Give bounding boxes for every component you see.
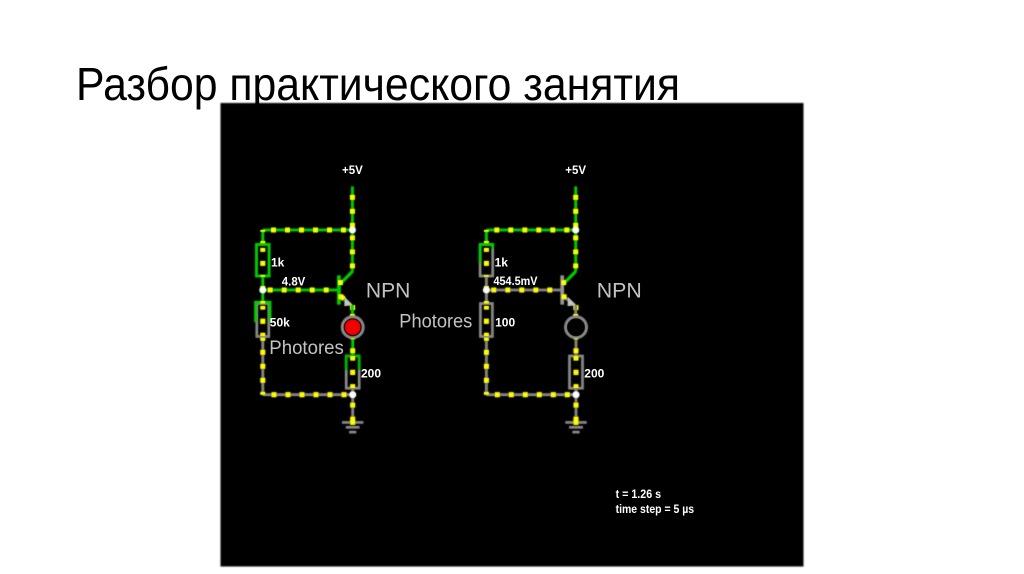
svg-text:1k: 1k [495, 256, 509, 270]
svg-text:454.5mV: 454.5mV [494, 274, 538, 288]
svg-text:100: 100 [495, 316, 515, 330]
svg-text:1k: 1k [271, 256, 285, 270]
svg-text:50k: 50k [270, 316, 290, 330]
svg-text:+5V: +5V [565, 165, 586, 177]
svg-text:NPN: NPN [366, 280, 411, 303]
svg-text:+5V: +5V [342, 165, 363, 177]
svg-text:200: 200 [361, 367, 381, 381]
svg-text:t = 1.26 s: t = 1.26 s [616, 487, 662, 501]
svg-text:4.8V: 4.8V [282, 275, 306, 289]
svg-text:NPN: NPN [597, 280, 642, 303]
svg-text:time step = 5 µs: time step = 5 µs [616, 502, 695, 516]
svg-text:Photores: Photores [269, 338, 344, 359]
svg-text:Photores: Photores [399, 312, 472, 333]
svg-text:200: 200 [584, 367, 604, 381]
